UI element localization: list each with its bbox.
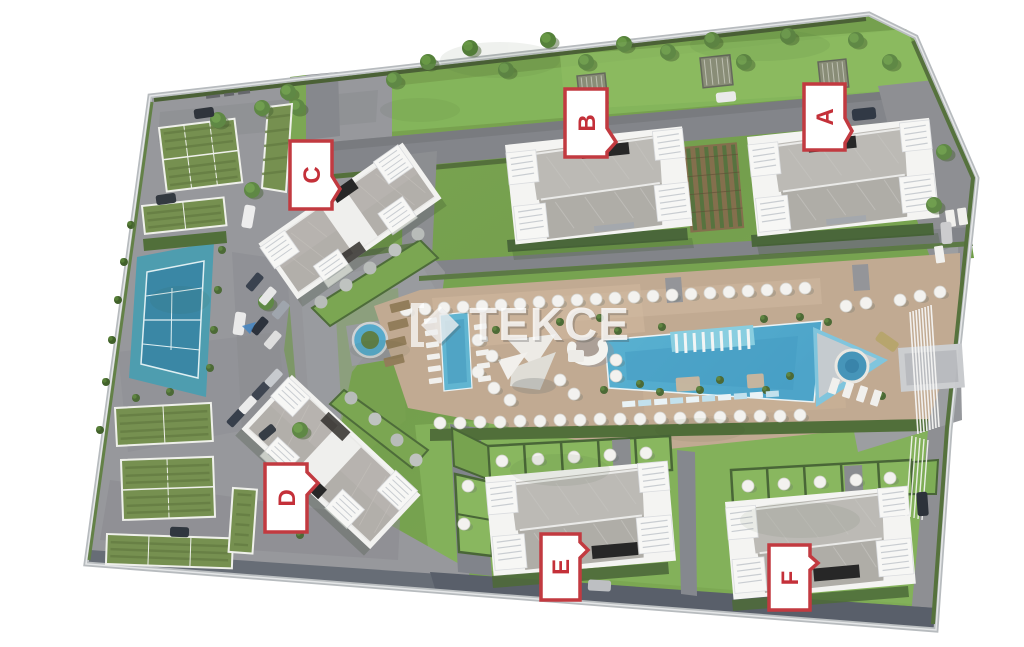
svg-text:A: A <box>812 108 839 125</box>
svg-text:F: F <box>777 571 804 586</box>
svg-text:C: C <box>299 166 326 183</box>
svg-text:B: B <box>574 114 601 131</box>
svg-text:E: E <box>548 559 575 575</box>
svg-text:D: D <box>274 489 301 506</box>
